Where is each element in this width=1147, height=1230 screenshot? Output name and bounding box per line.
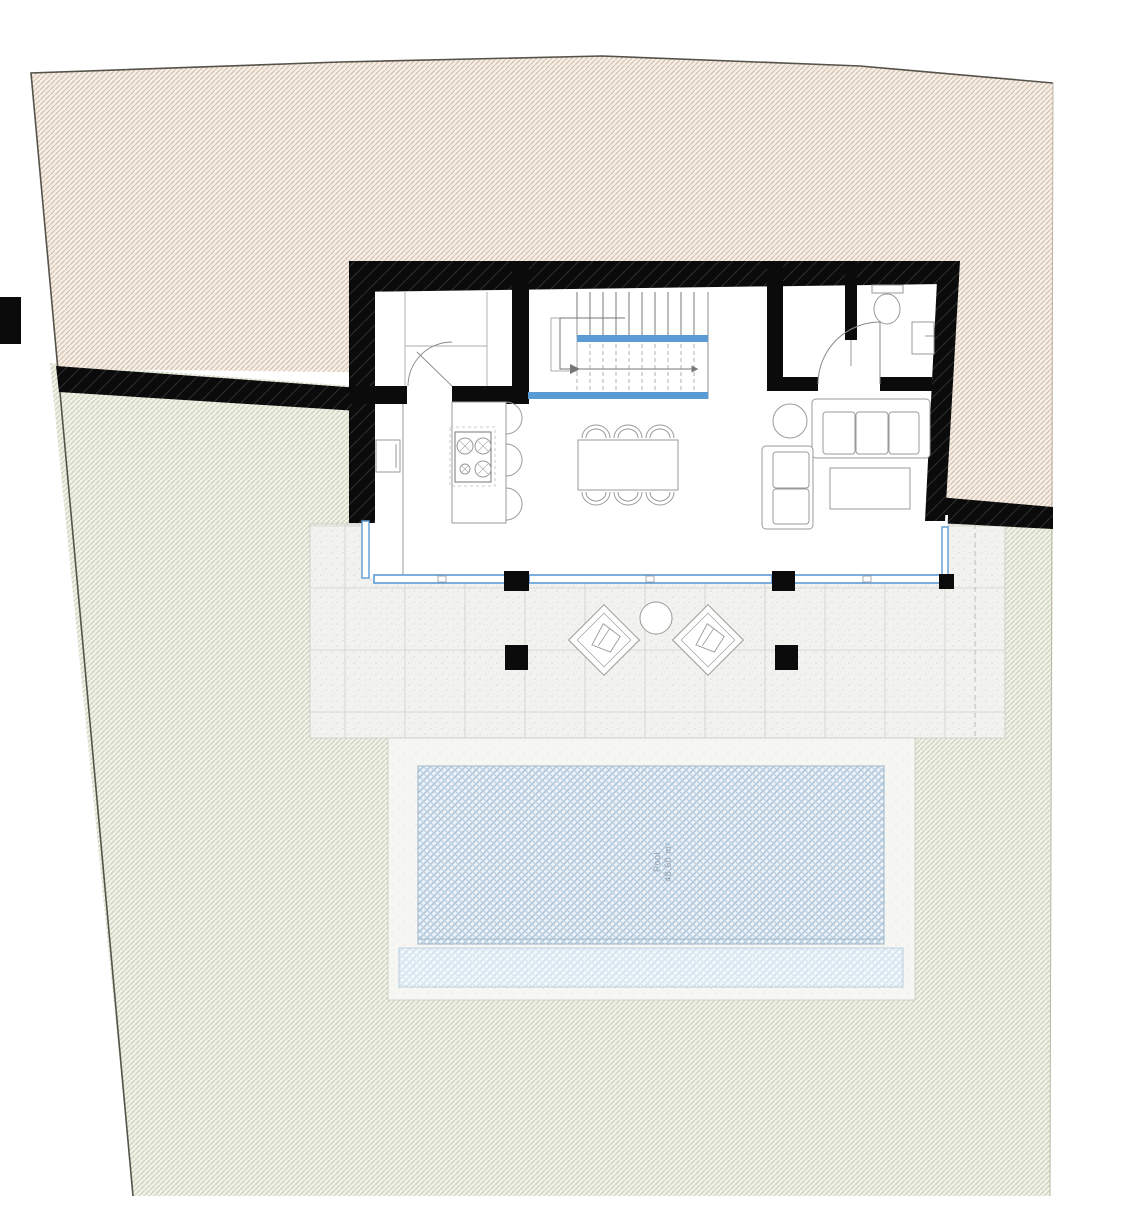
pool-overflow-channel [399, 948, 903, 987]
dining-table [578, 440, 678, 490]
coffee-table [830, 468, 910, 509]
terrace-side-table [640, 602, 672, 634]
facade-post-right [939, 574, 954, 589]
pool-label-line2: 48,60 m² [663, 842, 673, 882]
facade-post-left [504, 571, 529, 591]
facade-post-mid [772, 571, 795, 591]
pool-label-line1: Pool [652, 852, 662, 872]
swimming-pool [418, 766, 884, 944]
terrace-column-left [505, 645, 528, 670]
site-plan-drawing: Pool 48,60 m² [0, 0, 1147, 1230]
side-table [773, 404, 807, 438]
terrace-column-right [775, 645, 798, 670]
house [349, 261, 960, 591]
cooktop [450, 427, 495, 486]
floor-plan: Pool 48,60 m² [0, 0, 1147, 1230]
kitchen-appliance [376, 440, 400, 472]
washbasin [912, 322, 934, 354]
sofa-two-seat [762, 446, 813, 529]
sofa-three-seat [812, 399, 930, 458]
neighbour-wall-stub [0, 297, 21, 344]
